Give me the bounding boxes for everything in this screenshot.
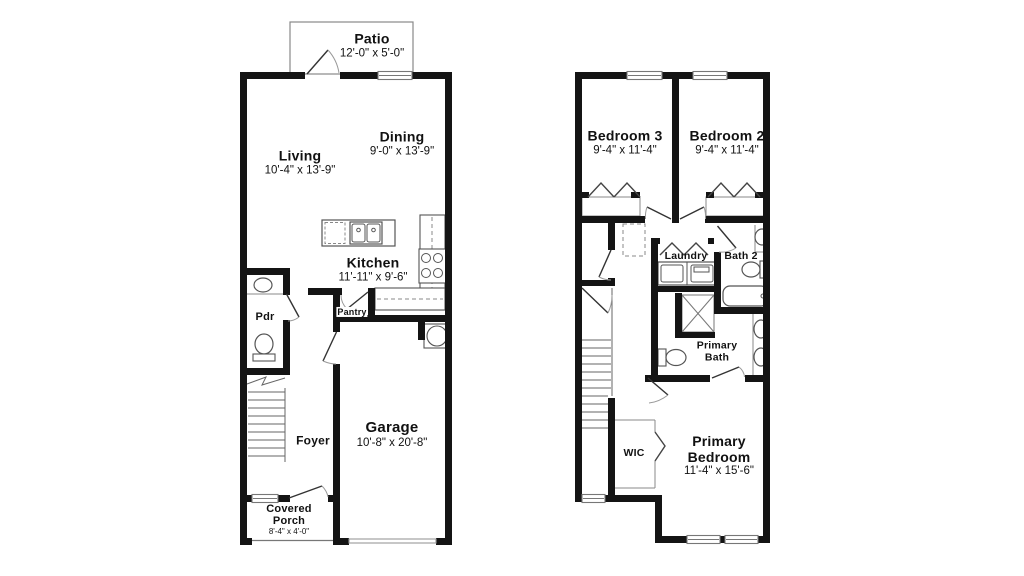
kitchen-name: Kitchen [338, 256, 407, 272]
garage-door [349, 539, 436, 543]
bedroom3-label: Bedroom 3 9'-4" x 11'-4" [588, 129, 663, 158]
attic-access-dashed [623, 224, 645, 256]
garage-dims: 10'-8" x 20'-8" [357, 437, 428, 450]
dining-dims: 9'-0" x 13'-9" [370, 145, 434, 158]
bathtub-icon [723, 286, 768, 306]
laundry-label: Laundry [665, 251, 708, 263]
patio-label: Patio 12'-0" x 5'-0" [340, 32, 404, 61]
floorplan-line-drawing [0, 0, 1024, 576]
pdr-name: Pdr [256, 311, 275, 323]
living-label: Living 10'-4" x 13'-9" [265, 149, 336, 178]
bath2-label: Bath 2 [724, 251, 757, 263]
pdr-label: Pdr [256, 311, 275, 323]
wic-label: WIC [623, 448, 644, 460]
dining-label: Dining 9'-0" x 13'-9" [370, 130, 434, 159]
foyer-name: Foyer [296, 434, 330, 447]
washer-dryer-icon [658, 262, 716, 285]
wic-door-icon [655, 432, 665, 461]
shower-icon [682, 295, 714, 332]
bedroom2-label: Bedroom 2 9'-4" x 11'-4" [690, 129, 765, 158]
primary-bedroom-dims: 11'-4" x 15'-6" [678, 465, 760, 478]
primary-toilet-icon [658, 349, 686, 366]
covered-porch-name: Covered Porch [261, 503, 317, 528]
floorplan-canvas: Patio 12'-0" x 5'-0" Living 10'-4" x 13'… [0, 0, 1024, 576]
primary-bedroom-label: Primary Bedroom 11'-4" x 15'-6" [678, 434, 760, 478]
bath2-name: Bath 2 [724, 251, 757, 263]
foyer-label: Foyer [296, 434, 330, 447]
stairs-icon-second-floor [578, 288, 612, 428]
laundry-name: Laundry [665, 251, 708, 263]
living-dims: 10'-4" x 13'-9" [265, 164, 336, 177]
bedroom2-name: Bedroom 2 [690, 129, 765, 145]
patio-name: Patio [340, 32, 404, 48]
stairs-icon-first-floor [247, 377, 285, 462]
kitchen-label: Kitchen 11'-11" x 9'-6" [338, 256, 407, 285]
covered-porch-label: Covered Porch 8'-4" x 4'-0" [261, 503, 317, 537]
living-name: Living [265, 149, 336, 165]
wic-name: WIC [623, 448, 644, 460]
kitchen-dims: 11'-11" x 9'-6" [338, 271, 407, 284]
primary-bedroom-name: Primary Bedroom [678, 434, 760, 465]
dining-name: Dining [370, 130, 434, 146]
garage-label: Garage 10'-8" x 20'-8" [357, 420, 428, 450]
pantry-label: Pantry [336, 307, 367, 317]
covered-porch-dims: 8'-4" x 4'-0" [261, 528, 317, 537]
kitchen-island-icon [322, 220, 395, 246]
bedroom2-dims: 9'-4" x 11'-4" [690, 144, 765, 157]
primary-bath-label: Primary Bath [693, 340, 741, 364]
primary-bath-name: Primary Bath [693, 340, 741, 364]
bedroom3-name: Bedroom 3 [588, 129, 663, 145]
pdr-toilet-icon [253, 334, 275, 361]
pdr-sink-icon [247, 278, 283, 294]
bedroom3-dims: 9'-4" x 11'-4" [588, 144, 663, 157]
patio-dims: 12'-0" x 5'-0" [340, 47, 404, 60]
range-icon [419, 249, 446, 283]
pantry-name: Pantry [336, 307, 367, 317]
garage-name: Garage [357, 420, 428, 437]
